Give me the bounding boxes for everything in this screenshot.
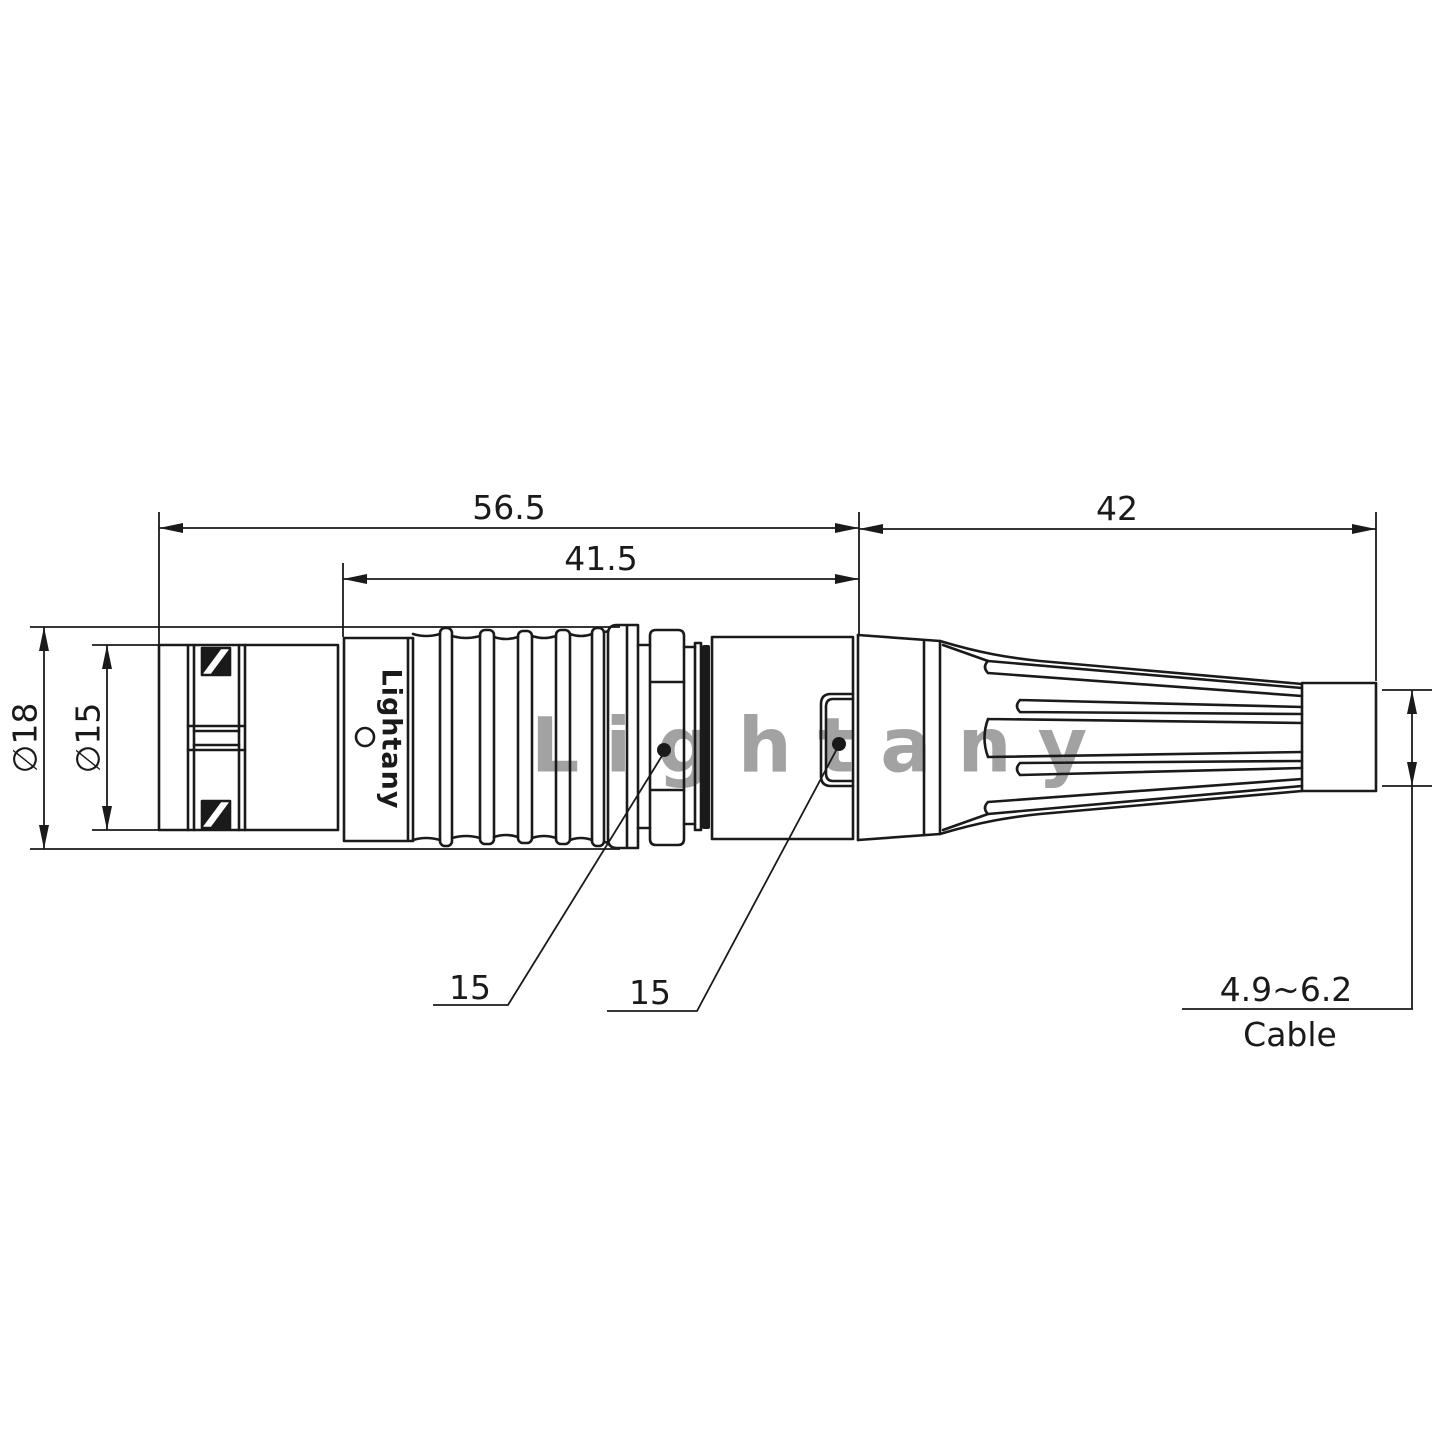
- backshell-leader-dot: [832, 737, 846, 751]
- front-barrel-outline: [159, 645, 338, 830]
- connector-dimension-drawing: Lightany Lightany: [0, 0, 1440, 1440]
- key-window: [188, 726, 245, 750]
- key-slot-bottom: [202, 801, 230, 828]
- cable-word-label: Cable: [1243, 1015, 1337, 1054]
- nut-size-callout: 15: [449, 968, 491, 1007]
- boot-end-cap: [1302, 683, 1376, 791]
- extension-lines-cable: [1382, 690, 1432, 786]
- body-index-dot: [356, 728, 374, 746]
- backshell-size-callout: 15: [629, 973, 671, 1012]
- rib-2: [480, 630, 494, 844]
- dim-front-length: 41.5: [564, 539, 637, 578]
- gasket-band: [702, 645, 710, 829]
- dim-outer-diameter-label: ∅18: [6, 703, 45, 774]
- front-barrel: [159, 645, 338, 830]
- technical-drawing-page: Lightany Lightany: [0, 0, 1440, 1440]
- rib-bottom-surface: [413, 835, 608, 843]
- dim-front-diameter-label: ∅15: [69, 703, 108, 774]
- dim-boot-length: 42: [1096, 489, 1138, 528]
- rib-top-surface: [413, 631, 608, 639]
- dim-total-length: 56.5: [472, 488, 545, 527]
- body-marking-text: Lightany: [376, 669, 407, 810]
- rib-1: [440, 628, 452, 846]
- coupling-body: Lightany: [344, 638, 413, 841]
- nut-leader-dot: [657, 743, 671, 757]
- cable-range-label: 4.9~6.2: [1220, 970, 1353, 1009]
- key-slot-top: [202, 648, 230, 675]
